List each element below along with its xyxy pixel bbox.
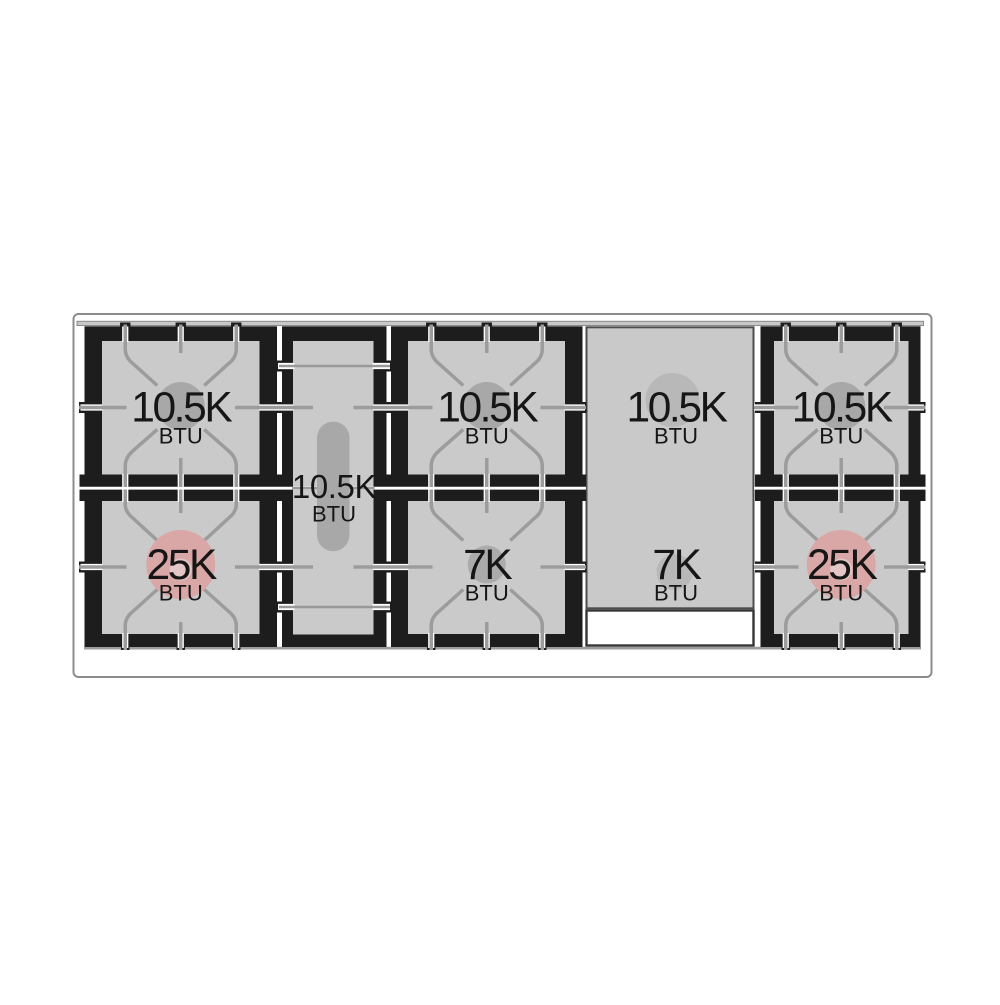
svg-text:BTU: BTU — [312, 502, 356, 527]
svg-text:BTU: BTU — [465, 581, 509, 606]
svg-text:BTU: BTU — [654, 424, 698, 449]
svg-text:BTU: BTU — [819, 424, 863, 449]
svg-text:10.5K: 10.5K — [292, 468, 377, 505]
svg-text:BTU: BTU — [159, 581, 203, 606]
svg-text:BTU: BTU — [465, 424, 509, 449]
svg-text:BTU: BTU — [654, 581, 698, 606]
svg-text:BTU: BTU — [819, 581, 863, 606]
svg-text:BTU: BTU — [159, 424, 203, 449]
